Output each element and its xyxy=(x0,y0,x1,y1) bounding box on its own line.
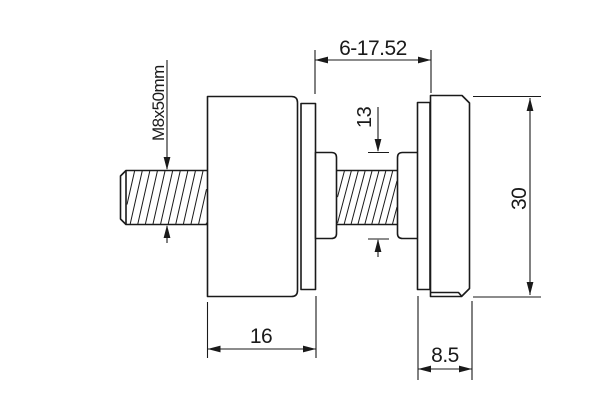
hatch-line xyxy=(168,171,180,224)
hatch-line xyxy=(386,181,397,224)
rod-thread-hatching xyxy=(127,171,207,224)
hatch-line xyxy=(176,171,188,224)
hatch-line xyxy=(358,171,372,224)
dim-outer-diameter: 30 xyxy=(473,97,541,298)
arrowhead xyxy=(303,346,316,353)
hatch-line xyxy=(365,171,379,224)
dim-thread-spec: M8x50mm xyxy=(149,60,168,243)
technical-drawing-canvas: 6-17.52 M8x50mm 13 16 8.5 30 xyxy=(0,0,602,400)
arrowhead xyxy=(164,157,171,170)
hatch-line xyxy=(199,189,207,224)
hatch-line xyxy=(338,171,345,197)
dim-stud-diameter: 13 xyxy=(354,106,389,257)
left-collar xyxy=(316,153,337,239)
arrowhead xyxy=(527,98,534,111)
cap-width-label: 8.5 xyxy=(431,344,459,367)
hatch-line xyxy=(344,171,358,224)
arrowhead xyxy=(375,239,382,252)
thread-spec-label: M8x50mm xyxy=(149,65,168,141)
arrowhead xyxy=(315,57,328,64)
right-collar xyxy=(398,153,419,239)
stud-thread-hatching xyxy=(338,171,398,224)
standoff-fastener-drawing: 6-17.52 M8x50mm 13 16 8.5 30 xyxy=(0,0,602,400)
arrowhead xyxy=(418,366,431,373)
cap-ring xyxy=(418,103,431,290)
gap-range-label: 6-17.52 xyxy=(339,37,407,60)
hatch-line xyxy=(379,171,393,224)
hatch-line xyxy=(153,171,165,224)
cap-disc xyxy=(431,96,470,297)
hatch-line xyxy=(393,207,398,224)
arrowhead xyxy=(527,282,534,295)
hatch-line xyxy=(338,171,352,223)
body-width-label: 16 xyxy=(250,325,272,348)
hatch-line xyxy=(138,171,150,224)
arrowhead xyxy=(164,225,171,238)
hatch-line xyxy=(351,171,365,224)
outer-diameter-label: 30 xyxy=(508,188,531,210)
dim-body-width: 16 xyxy=(208,296,317,358)
hatch-line xyxy=(127,171,135,205)
hatch-line xyxy=(161,171,173,224)
hatch-line xyxy=(191,171,203,224)
arrowhead xyxy=(208,346,221,353)
body-cylinder xyxy=(208,97,298,297)
dim-gap-range: 6-17.52 xyxy=(315,37,431,94)
arrowhead xyxy=(459,366,472,373)
arrowhead xyxy=(375,139,382,152)
stud-diameter-label: 13 xyxy=(354,106,376,128)
hatch-line xyxy=(183,171,195,224)
arrowhead xyxy=(418,57,431,64)
hatch-line xyxy=(372,171,386,224)
body-ring xyxy=(301,104,316,290)
hatch-line xyxy=(145,171,157,224)
hatch-line xyxy=(130,171,142,224)
